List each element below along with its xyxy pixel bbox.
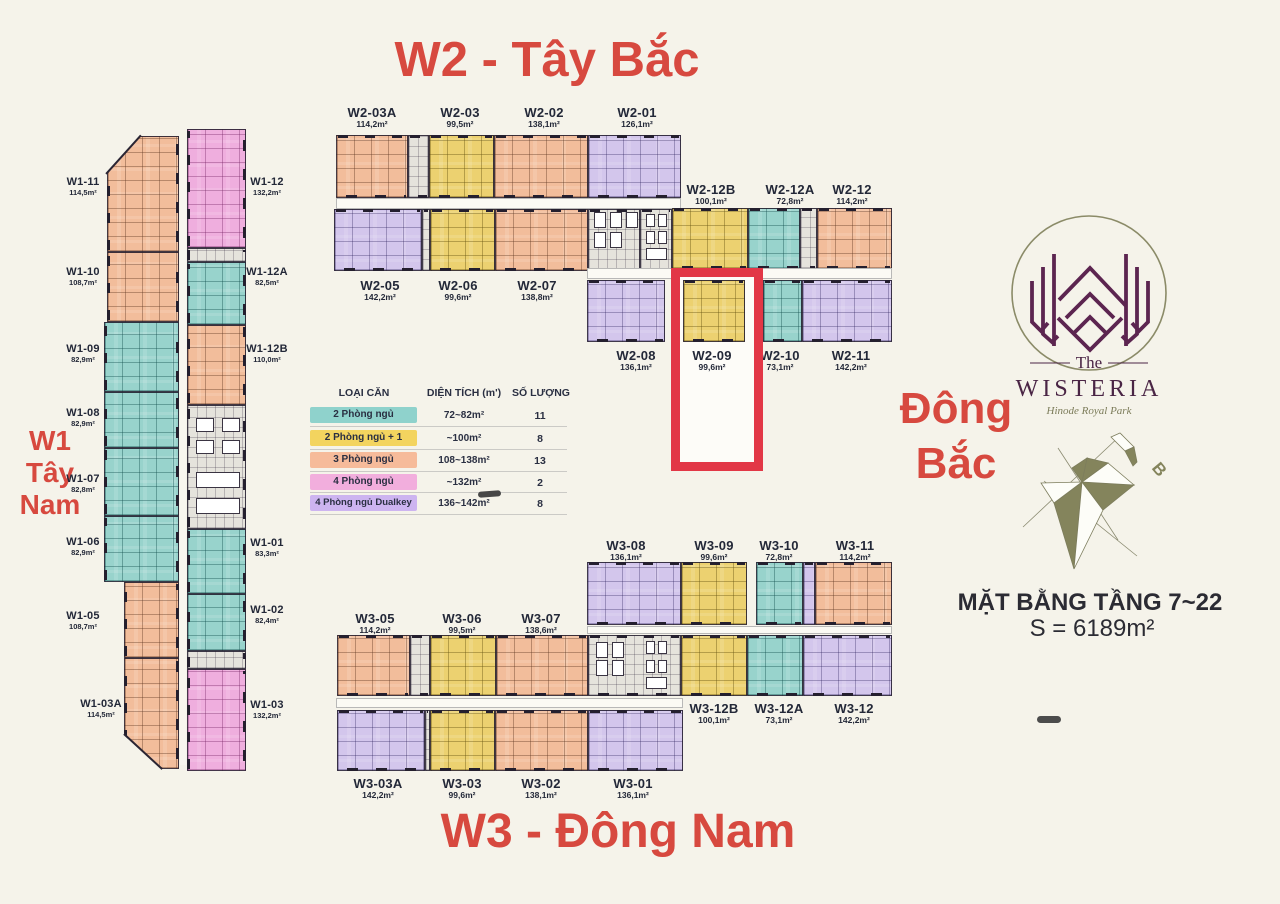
- svg-text:B: B: [1148, 459, 1170, 481]
- svg-text:Hinode Royal Park: Hinode Royal Park: [1046, 405, 1133, 417]
- svg-text:WISTERIA: WISTERIA: [1016, 376, 1163, 402]
- svg-text:The: The: [1076, 353, 1102, 372]
